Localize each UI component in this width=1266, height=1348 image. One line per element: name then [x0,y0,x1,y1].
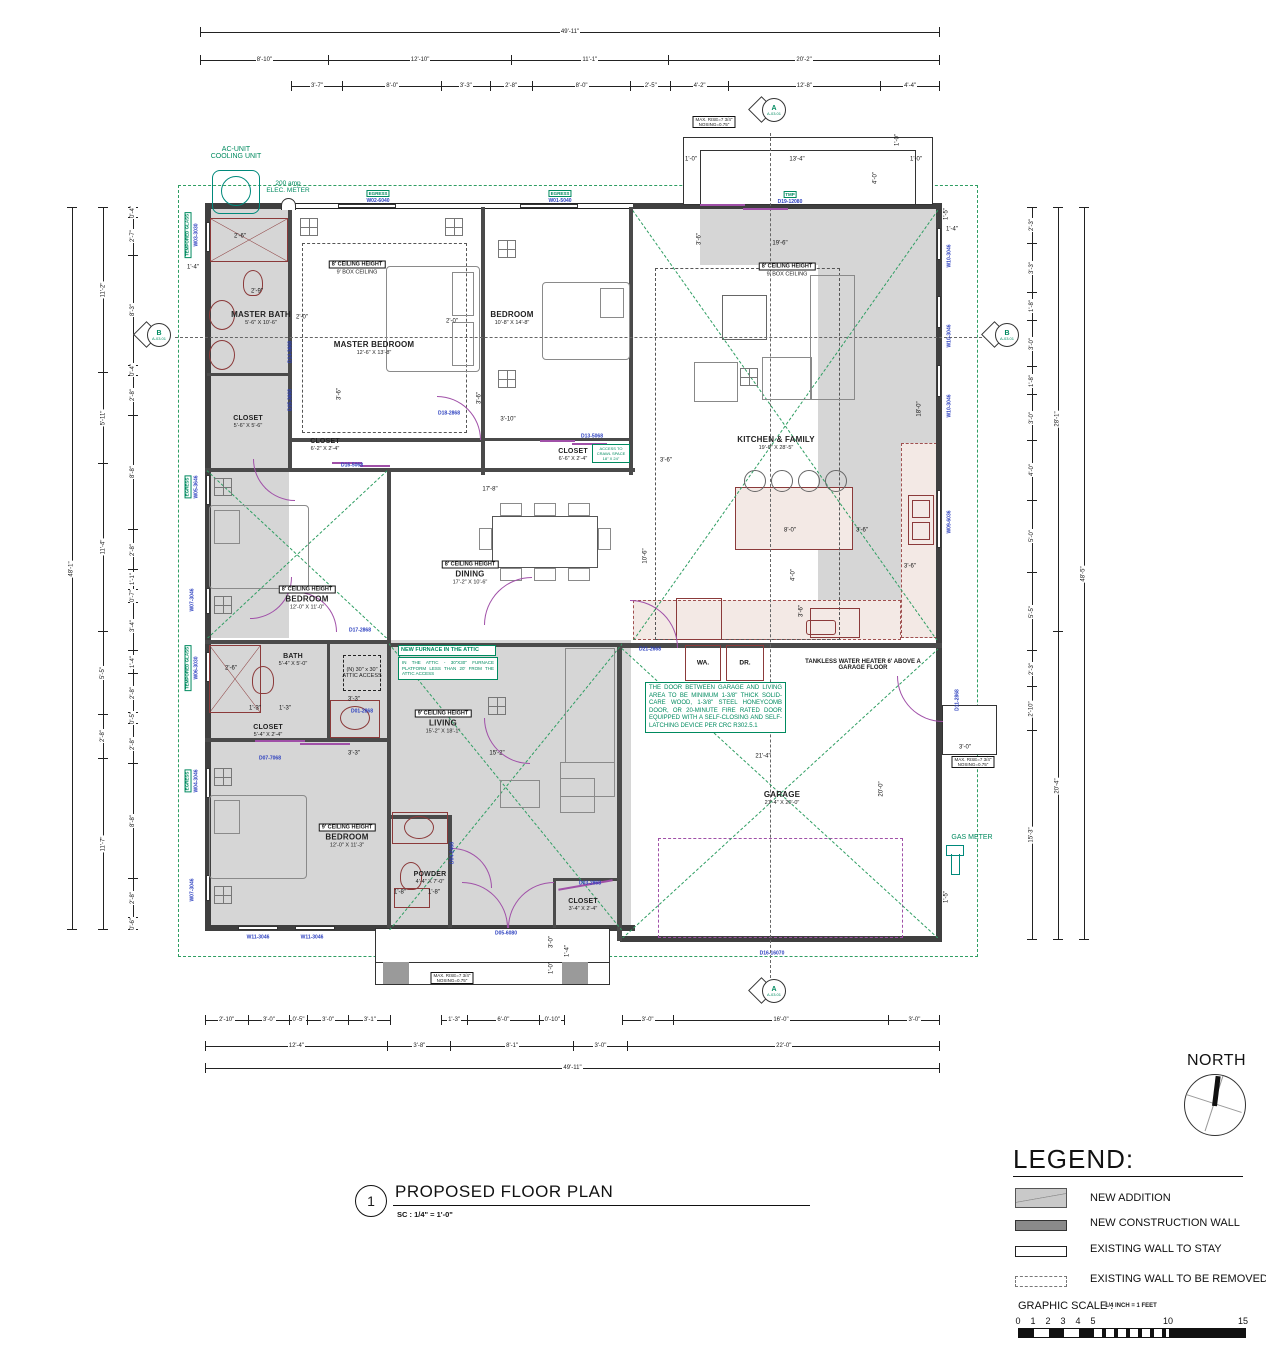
dim-segment: 5'-5" [1026,573,1038,651]
door-tag: D03-2868 [579,881,601,887]
dim-segment: 11'-1" [511,54,668,66]
legend-swatch-new-wall [1015,1220,1067,1231]
marker-circle: B A-03.01 [995,323,1019,347]
title-underline [393,1205,810,1206]
dining-table-icon [492,516,598,568]
window [206,768,210,798]
scale-cell [1034,1329,1049,1337]
section-marker-b-left: B A-03.01 [135,322,175,352]
dim-segment: 1'-8" [1026,292,1038,320]
door-tag: D04-2468 [450,842,456,864]
dim-chain-left-major: 11'-2"5'-11"11'-4"5'-5"2'-8"11'-7" [97,207,109,930]
window [520,204,578,208]
porch-post [562,962,588,984]
room-label-dining: 8' CEILING HEIGHT DINING 17'-2" X 10'-6" [442,561,499,586]
dim-segment: 2'-8" [127,376,139,416]
scale-cell [1049,1329,1064,1337]
room-label-bedroom-mid: 8' CEILING HEIGHT BEDROOM 12'-0" X 11'-0… [279,586,336,611]
legend-swatch-new-addition [1015,1188,1067,1208]
dim-segment: 5'-5" [97,631,109,714]
pillow-icon [452,272,474,316]
dim-segment: 11'-4" [97,463,109,631]
room-label-master-bath: MASTER BATH 5'-6" X 10'-6" [231,310,291,326]
door-tag: D01-2868 [351,709,373,715]
dim-segment: 2'-3" [1026,651,1038,687]
graphic-scale-note: 1/4 INCH = 1 FEET [1105,1303,1157,1309]
dim-segment: 3'-0" [1026,395,1038,441]
nightstand-icon [214,596,232,614]
sliding-door [743,208,788,210]
window-tag: EGRESS [185,770,192,793]
dim-segment: 2'-8" [127,673,139,713]
nightstand-icon [498,240,516,258]
dim-segment: 8'-8" [127,763,139,878]
drawing-title: PROPOSED FLOOR PLAN [395,1182,613,1202]
legend-title: LEGEND: [1013,1144,1134,1175]
porch-post [383,962,409,984]
sofa-chaise-icon [762,357,812,400]
dim-label: 3'-0" [549,936,556,948]
room-label-bedroom-top: BEDROOM 10'-8" X 14'-8" [490,310,533,326]
dim-segment: 2'-10" [1026,687,1038,731]
dim-segment: 0'-4" [127,207,139,217]
dim-segment: 3'-1" [349,1014,391,1026]
dryer-label: DR. [739,659,750,666]
shower-icon [210,218,288,262]
nightstand-icon [498,370,516,388]
dim-segment: 22'-0" [628,1040,940,1052]
marker-circle: A A-03.01 [762,979,786,1003]
dim-label: 3'-6" [337,388,344,400]
window [238,926,278,930]
window-tag: TEMPORED GLASS [185,645,192,691]
chair-icon [500,503,522,516]
dim-chain-bottom-overall: 49'-11" [205,1062,940,1074]
sliding-door [300,743,350,745]
nightstand-icon [214,478,232,496]
dim-chain-top-major: 8'-10"12'-10"11'-1"20'-2" [200,54,940,66]
dim-label: 1'-0" [910,157,922,164]
door-tag: D17-2868 [349,628,371,634]
dim-segment: 8'-0" [532,80,631,92]
marker-circle: A A-03.01 [762,98,786,122]
drawing-number-circle: 1 [355,1185,387,1217]
dim-segment: 2'-8" [127,724,139,764]
sliding-door [700,204,745,206]
dim-segment: 3'-3" [1026,243,1038,292]
scale-cell [1094,1329,1169,1337]
ceiling-label: 8' CEILING HEIGHT 9' BOX CEILING [759,263,816,278]
dim-label: 1'-3" [249,706,261,713]
dim-label: 4'-0" [873,172,880,184]
dim-segment: 3'-0" [1026,321,1038,367]
dim-segment: 48'-1" [66,207,78,930]
dim-segment: 12'-4" [205,1040,388,1052]
nightstand-icon [214,768,232,786]
door-tag: D15-3668 [288,389,294,411]
room-label-living: 9' CEILING HEIGHT LIVING 15'-2" X 18'-1" [415,710,472,735]
dim-label: 8'-0" [784,528,796,535]
pillow-icon [214,800,240,834]
room-label-powder: POWDER 4'-4" X 7'-0" [414,871,447,885]
dim-segment: 0'-5" [290,1014,308,1026]
ac-unit-label: AC-UNIT COOLING UNIT [211,146,262,160]
attic-access-label: (N) 30" x 30" ATTIC ACCESS [342,667,381,679]
dim-segment: 1'-1" [127,569,139,589]
door-tag: D16-16070 [760,951,785,957]
dim-segment: 3'-0" [307,1014,348,1026]
dim-label: 17'-8" [482,487,497,494]
gas-meter-label: GAS METER [951,834,992,842]
dim-chain-left-minor: 0'-4"2'-7"8'-3"0'-4"2'-8"8'-8"2'-8"1'-1"… [127,207,139,930]
dim-segment: 3'-3" [442,80,490,92]
door-tag: D21-2668 [639,647,661,653]
dim-label: 3'-6" [856,528,868,535]
armchair-icon [722,295,767,340]
dim-segment: 3'-0" [573,1040,627,1052]
dim-label: 2'-0" [446,319,458,326]
dim-chain-top-minor: 3'-7"8'-0"3'-3"2'-8"8'-0"2'-5"4'-2"12'-8… [291,80,940,92]
stool-icon [771,470,793,492]
scale-tick: 0 [1015,1316,1020,1326]
cooktop-icon [806,620,836,635]
dim-segment: 4'-4" [880,80,940,92]
dim-segment: 2'-8" [127,878,139,918]
legend-label: NEW ADDITION [1090,1192,1171,1204]
dim-chain-right-major: 28'-1"20'-4" [1052,207,1064,940]
dim-label: 18'-0" [917,401,924,416]
dim-label: 4'-0" [791,569,798,581]
dim-label: 3'-6" [477,392,484,404]
max-rise-note-bottom: MAX. RISE=7 3/4" NOSING=0.75" [431,972,474,984]
dim-segment: 3'-8" [388,1040,451,1052]
dim-segment: 3'-0" [248,1014,289,1026]
dim-label: 19'-6" [772,241,787,248]
dim-label: 3'-3" [348,751,360,758]
table-icon [560,778,595,813]
door-tag: D07-7068 [259,756,281,762]
room-label-master-bedroom: MASTER BEDROOM 12'-6" X 13'-8" [334,340,415,356]
drawing-number: 1 [367,1193,375,1209]
window [206,875,210,901]
window-tag: W09-6036 [947,510,953,533]
elec-meter-icon [281,198,296,210]
door-tag: D14-3668 [288,341,294,363]
dim-segment: 3'-7" [291,80,343,92]
room-label-closet-master: CLOSET 5'-6" X 5'-6" [233,415,263,429]
marker-circle: B A-03.01 [147,323,171,347]
dim-label: 3'-0" [959,745,971,752]
dim-segment: 49'-11" [200,26,940,38]
pillow-icon [214,510,240,544]
room-label-closet-bath: CLOSET 5'-4" X 2'-4" [253,724,283,738]
dim-segment: 8'-0" [343,80,442,92]
dim-segment: 48'-5" [1078,207,1090,940]
dim-segment: 3'-0" [889,1014,940,1026]
max-rise-note-top: MAX. RISE=7 3/4" NOSING=0.75" [693,116,736,128]
dim-segment: 20'-4" [1052,631,1064,940]
sofa-icon [565,648,615,763]
scale-cell [1169,1329,1245,1337]
nightstand-icon [300,218,318,236]
section-marker-b-right: B A-03.01 [983,322,1023,352]
window-tag: W06-3030 [194,656,200,679]
dim-segment: 12'-10" [329,54,512,66]
room-label-kitchen-family: KITCHEN & FAMILY 19'-6" X 28'-5" [737,435,815,451]
scale-tick: 1 [1030,1316,1035,1326]
wall-segment [205,640,390,644]
dim-segment: 5'-0" [1026,500,1038,573]
table-icon [500,780,540,808]
dim-segment: 2'-5" [631,80,671,92]
sofa-icon [810,275,855,400]
window-tag: EGRESS W02-6040 [366,190,389,204]
section-marker-a-bottom: A A-03.01 [750,978,790,1008]
dim-label: 2'-6" [234,234,246,241]
dim-label: 1'-4" [946,227,958,234]
wall-segment [288,207,292,470]
sink-icon [209,340,235,370]
scale-tick: 10 [1163,1316,1173,1326]
dim-segment: 0'-6" [127,918,139,930]
side-table-icon [740,368,758,386]
window-tag: EGRESS [185,476,192,499]
sink-basin-icon [912,522,930,540]
dim-label: 15'-2" [489,751,504,758]
coffee-table-icon [694,362,738,402]
furnace-note-body: IN THE ATTIC - 30"X30" FURNACE PLATFORM … [398,657,498,680]
washer-label: WA. [697,659,709,666]
refrigerator-icon [676,598,722,640]
ceiling-label: 8' CEILING HEIGHT 9' BOX CEILING [329,261,386,276]
section-marker-a-top: A A-03.01 [750,97,790,127]
furnace-note-title: NEW FURNACE IN THE ATTIC [398,645,496,656]
dim-segment: 0'-4" [127,365,139,375]
window [338,204,396,208]
chair-icon [534,503,556,516]
floor-plan-sheet: WA. DR. MASTER BATH 5'-6" X 10'-6" 8' CE… [0,0,1266,1348]
dim-label: 3'-6" [697,233,704,245]
dim-segment: 0'-5" [127,713,139,724]
dim-chain-bottom-minor-c: 3'-0"16'-0"3'-0" [622,1014,940,1026]
dim-label: 1'-4" [187,265,199,272]
legend-underline [1013,1176,1243,1177]
stool-icon [798,470,820,492]
dim-segment: 2'-7" [127,217,139,255]
wall-segment [481,207,485,475]
stool-icon [825,470,847,492]
dim-segment: 3'-0" [622,1014,673,1026]
sliding-door [540,440,575,442]
coffee-table-icon [488,697,506,715]
dim-label: 2'-6" [225,666,237,673]
graphic-scale-bar [1018,1328,1246,1338]
scale-tick: 4 [1075,1316,1080,1326]
wall-segment [207,373,290,376]
north-label: NORTH [1187,1052,1246,1070]
dim-label: 3'-10" [500,417,515,424]
dim-label: 1'-0" [895,134,902,146]
room-label-closet-hall1: CLOSET 6'-2" X 2'-4" [310,438,340,452]
chair-icon [598,528,611,550]
dim-segment: 8'-8" [127,415,139,530]
chair-icon [479,528,492,550]
toilet-icon [252,666,274,694]
dim-segment: 4'-2" [671,80,729,92]
dim-chain-bottom-major: 12'-4"3'-8"8'-1"3'-0"22'-0" [205,1040,940,1052]
room-label-garage: GARAGE 21'-4" X 20'-0" [764,790,800,806]
room-label-closet-hall2: CLOSET 6'-6" X 2'-4" [558,448,588,462]
window-tag: W11-3046 [247,935,270,941]
dim-label: 3'-6" [799,605,806,617]
dim-chain-top-overall: 49'-11" [200,26,940,38]
door-tag: D05-6080 [495,931,517,937]
room-label-bath: BATH 5'-4" X 5'-0" [279,653,308,667]
dim-label: 1'-5" [944,208,951,220]
dim-segment: 3'-4" [127,602,139,650]
room-label-bedroom-bottom: 9' CEILING HEIGHT BEDROOM 12'-0" X 11'-3… [319,824,376,849]
chair-icon [568,503,590,516]
legend-swatch-existing-wall [1015,1246,1067,1257]
elec-meter-label: 200 amp ELEC. METER [266,180,309,194]
dim-segment: 2'-8" [127,530,139,570]
window-tag: W10-3046 [947,324,953,347]
dim-segment: 2'-10" [205,1014,248,1026]
dim-label: 1'-0" [549,962,556,974]
stool-icon [744,470,766,492]
dim-label: 21'-4" [755,754,770,761]
dim-label: 13'-4" [789,157,804,164]
dim-label: 1'-5" [944,891,951,903]
window-tag: W05-3646 [194,475,200,498]
dim-label: 1'-4" [565,945,572,957]
dim-segment: 11'-7" [97,758,109,930]
window-tag: EGRESS W01-5040 [548,190,571,204]
scale-cell [1064,1329,1079,1337]
ac-fan-icon [221,176,251,206]
window-tag: W04-3046 [194,769,200,792]
nightstand-icon [445,218,463,236]
window-tag: W07-3046 [190,588,196,611]
legend-swatch-removed-wall [1015,1276,1067,1287]
dim-segment: 2'-8" [490,80,532,92]
chair-icon [534,568,556,581]
dim-segment: 2'-3" [1026,207,1038,243]
door-tag: D11-2868 [955,689,961,711]
window [295,926,335,930]
dim-chain-bottom-minor-b: 1'-3"6'-0"0'-10" [441,1014,565,1026]
dim-label: 10'-6" [643,548,650,563]
dim-segment: 2'-8" [97,714,109,758]
drawing-scale: SC : 1/4" = 1'-0" [397,1210,453,1219]
gas-pipe-icon [951,854,960,875]
dim-segment: 1'-8" [1026,367,1038,395]
window-tag: TEMPORED GLASS [185,212,192,258]
dim-segment: 28'-1" [1052,207,1064,631]
dim-label: 2'-0" [296,315,308,322]
scale-tick: 5 [1090,1316,1095,1326]
chair-icon [568,568,590,581]
dim-segment: 20'-2" [668,54,940,66]
dim-chain-right-minor: 2'-3"3'-3"1'-8"3'-0"1'-8"3'-0"4'-0"5'-0"… [1026,207,1038,940]
pillow-icon [452,322,474,366]
sink-icon [404,816,434,839]
tankless-note: TANKLESS WATER HEATER 6' ABOVE A GARAGE … [805,659,921,671]
window-tag: W10-3046 [947,394,953,417]
dim-label: 3'-3" [348,697,360,704]
dim-segment: 12'-8" [729,80,881,92]
scale-cell [1019,1329,1034,1337]
dim-label: 1'-3" [279,706,291,713]
scale-tick: 2 [1045,1316,1050,1326]
dim-segment: 0'-7" [127,589,139,602]
crawl-access-note: ACCESS TO CRAWL SPACE 18" X 24" [592,444,630,463]
dim-segment: 1'-3" [441,1014,467,1026]
max-rise-note-right: MAX. RISE=7 3/4" NOSING=0.75" [952,756,995,768]
dim-label: 3'-6" [660,458,672,465]
dim-label: 1'-0" [685,157,697,164]
sliding-door [255,740,305,742]
legend-label: EXISTING WALL TO STAY [1090,1243,1222,1255]
dim-segment: 8'-1" [451,1040,573,1052]
scale-tick: 3 [1060,1316,1065,1326]
porch-top-step [700,150,916,205]
door-tag: D13-5068 [581,434,603,440]
dim-segment: 6'-0" [467,1014,539,1026]
window-tag: W10-3046 [947,244,953,267]
dim-segment: 5'-11" [97,373,109,464]
sink-basin-icon [912,500,930,518]
dim-segment: 16'-0" [673,1014,889,1026]
dim-segment: 11'-2" [97,207,109,373]
dim-segment: 15'-3" [1026,731,1038,940]
dim-label: 2'-9" [251,289,263,296]
window-tag: W03-3030 [194,223,200,246]
dim-segment: 8'-10" [200,54,329,66]
dim-label: 1'-8" [394,890,406,897]
scale-tick: 15 [1238,1316,1248,1326]
dim-label: 1'-8" [428,890,440,897]
sliding-door [360,465,390,467]
garage-door-note: THE DOOR BETWEEN GARAGE AND LIVING AREA … [645,682,786,733]
graphic-scale-label: GRAPHIC SCALE : [1018,1300,1113,1312]
dim-segment: 1'-4" [127,650,139,673]
dim-label: 3'-6" [904,564,916,571]
door-tag: D16-5068 [341,463,363,469]
dim-chain-bottom-minor-a: 2'-10"3'-0"0'-5"3'-0"3'-1" [205,1014,391,1026]
dim-label: 20'-0" [879,781,886,796]
dim-segment: 4'-0" [1026,441,1038,500]
door-tag: TMP D19-12080 [778,191,803,205]
dim-segment: 49'-11" [205,1062,940,1074]
door-tag: D18-2868 [438,411,460,417]
dim-chain-left-overall: 48'-1" [66,207,78,930]
scale-cell [1079,1329,1094,1337]
pillow-icon [600,288,624,318]
nightstand-icon [214,886,232,904]
room-label-closet-entry: CLOSET 3'-4" X 2'-4" [568,898,598,912]
window-tag: W07-3046 [190,878,196,901]
window-tag: W11-3046 [301,935,324,941]
dim-chain-right-overall: 48'-5" [1078,207,1090,940]
legend-label: EXISTING WALL TO BE REMOVED [1090,1273,1266,1285]
dim-segment: 0'-10" [540,1014,565,1026]
legend-label: NEW CONSTRUCTION WALL [1090,1217,1240,1229]
